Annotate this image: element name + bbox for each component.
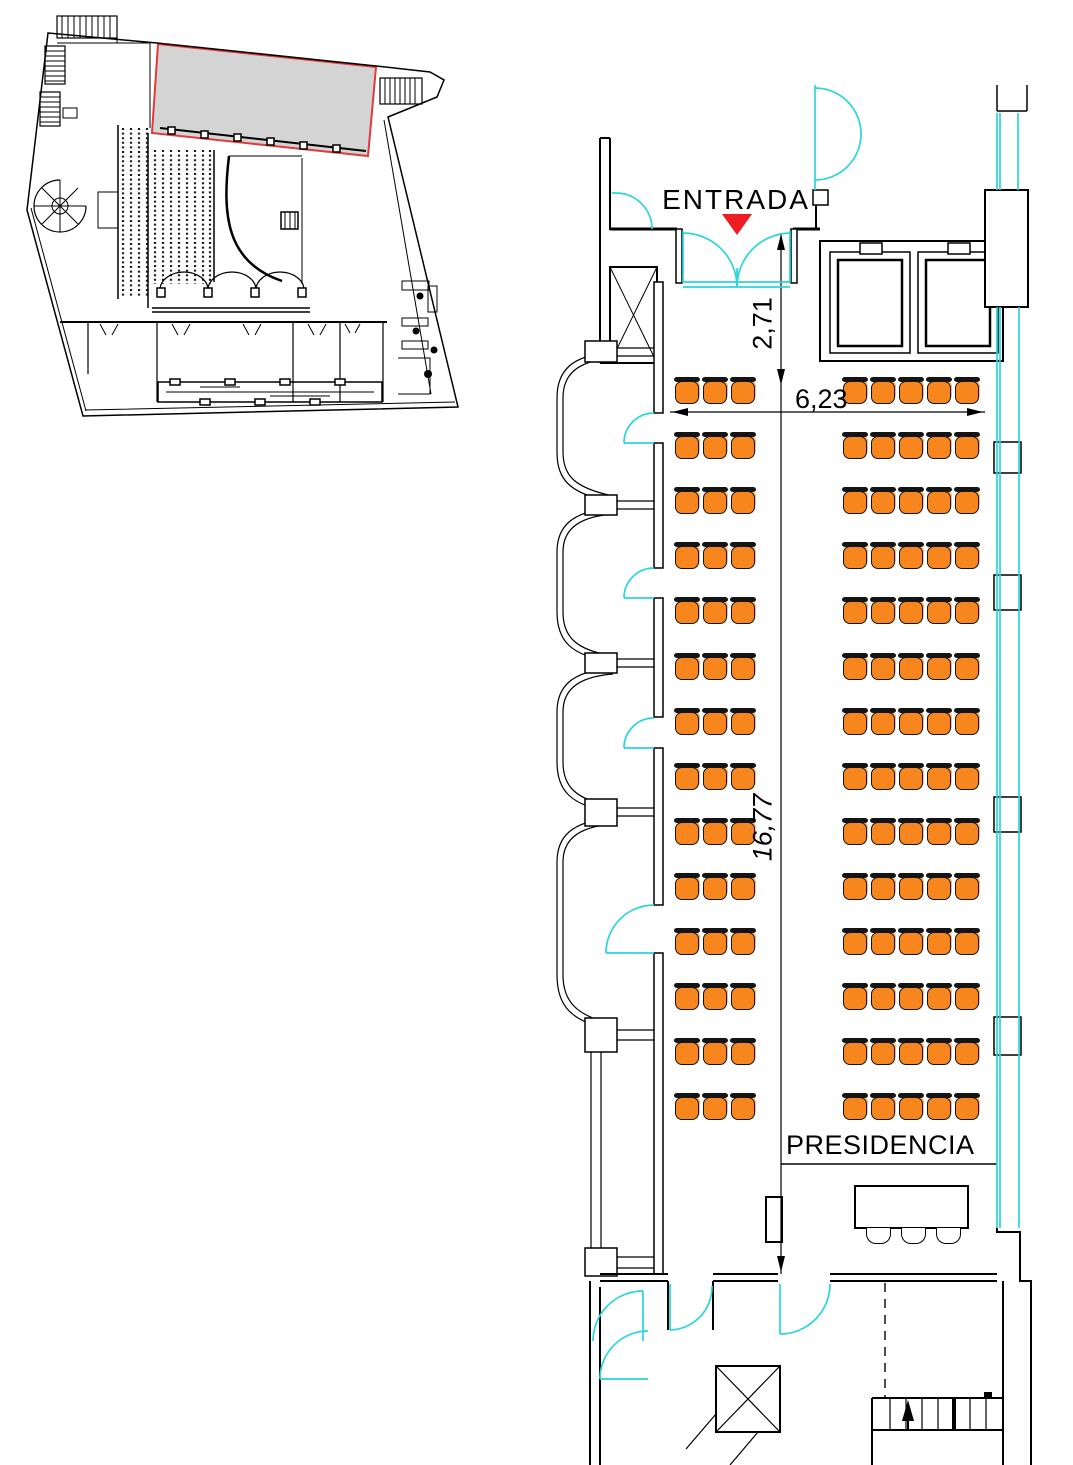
lectern <box>766 1197 782 1242</box>
plan-linework <box>0 0 1073 1465</box>
head-table <box>855 1186 968 1228</box>
dimension-lines <box>670 233 985 1274</box>
main-plan-walls <box>557 85 1031 1465</box>
floor-plan-canvas: ENTRADA 2,71 6,23 16,77 PRESIDENCIA <box>0 0 1073 1465</box>
entrance-marker-icon <box>722 214 752 235</box>
overview-key-plan <box>27 16 458 416</box>
